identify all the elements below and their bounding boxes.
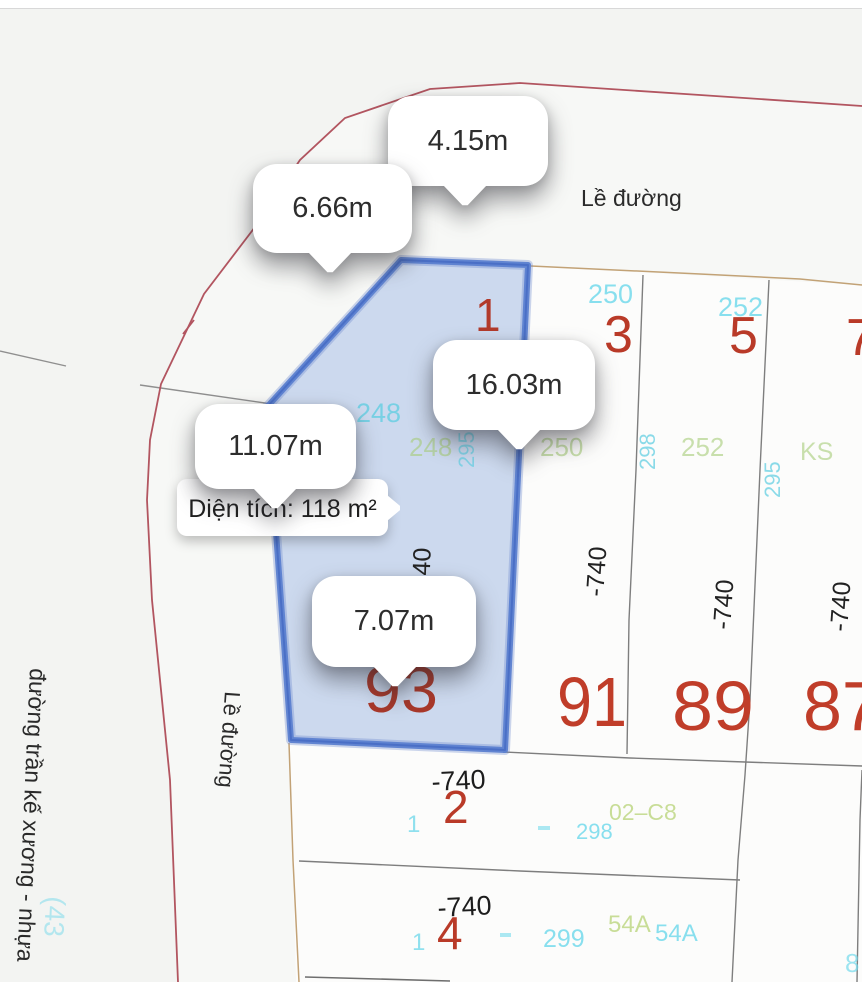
svg-text:250: 250 bbox=[588, 279, 633, 309]
svg-text:91: 91 bbox=[557, 663, 627, 741]
svg-text:1: 1 bbox=[475, 289, 501, 341]
svg-text:7: 7 bbox=[846, 309, 862, 367]
svg-text:2: 2 bbox=[443, 781, 469, 833]
svg-text:-740: -740 bbox=[708, 579, 739, 631]
svg-text:-740: -740 bbox=[581, 546, 612, 598]
svg-text:8: 8 bbox=[845, 948, 859, 978]
svg-text:248: 248 bbox=[356, 398, 401, 428]
svg-text:295: 295 bbox=[454, 431, 479, 468]
svg-text:3: 3 bbox=[604, 306, 633, 364]
svg-text:(43: (43 bbox=[38, 896, 71, 938]
svg-text:Lề đường: Lề đường bbox=[581, 185, 682, 211]
svg-text:1: 1 bbox=[412, 929, 425, 956]
svg-text:1: 1 bbox=[407, 811, 420, 838]
svg-text:252: 252 bbox=[681, 432, 724, 462]
svg-text:4: 4 bbox=[437, 907, 463, 959]
svg-text:5: 5 bbox=[729, 307, 758, 365]
svg-text:298: 298 bbox=[576, 819, 613, 844]
svg-text:KS: KS bbox=[800, 438, 833, 466]
svg-text:54A: 54A bbox=[608, 911, 651, 938]
svg-text:89: 89 bbox=[672, 667, 754, 745]
svg-text:250: 250 bbox=[540, 432, 583, 462]
svg-text:299: 299 bbox=[543, 925, 585, 953]
svg-text:54A: 54A bbox=[655, 920, 698, 947]
svg-text:02–C8: 02–C8 bbox=[609, 799, 677, 825]
svg-text:298: 298 bbox=[635, 433, 660, 470]
svg-text:87: 87 bbox=[803, 667, 862, 745]
svg-text:-740: -740 bbox=[825, 581, 856, 633]
svg-text:295: 295 bbox=[760, 461, 785, 498]
svg-text:248: 248 bbox=[409, 432, 452, 462]
